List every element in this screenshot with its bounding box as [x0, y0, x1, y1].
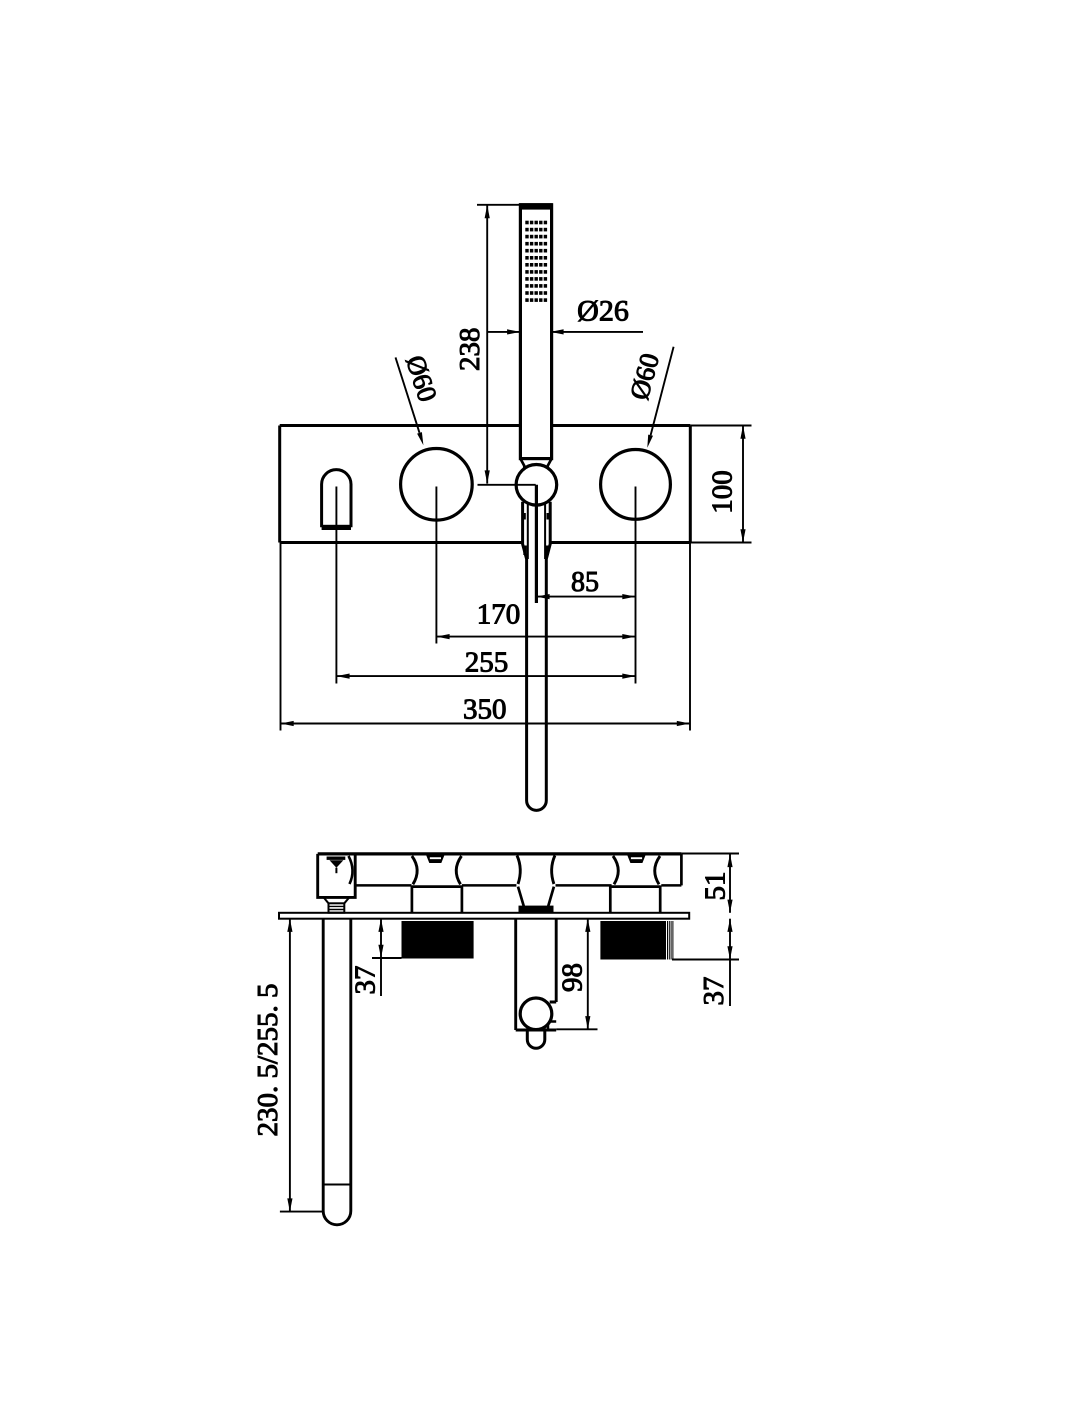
svg-text:170: 170	[477, 599, 521, 631]
svg-text:37: 37	[350, 966, 382, 995]
svg-text:350: 350	[463, 694, 507, 726]
svg-text:238: 238	[454, 328, 486, 372]
svg-text:Ø26: Ø26	[577, 295, 629, 328]
svg-text:37: 37	[698, 977, 730, 1006]
svg-text:230. 5/255. 5: 230. 5/255. 5	[252, 983, 284, 1136]
svg-text:100: 100	[707, 470, 739, 514]
svg-text:51: 51	[700, 872, 732, 901]
svg-text:255: 255	[465, 647, 509, 679]
svg-text:85: 85	[571, 567, 599, 598]
svg-text:98: 98	[556, 963, 588, 992]
